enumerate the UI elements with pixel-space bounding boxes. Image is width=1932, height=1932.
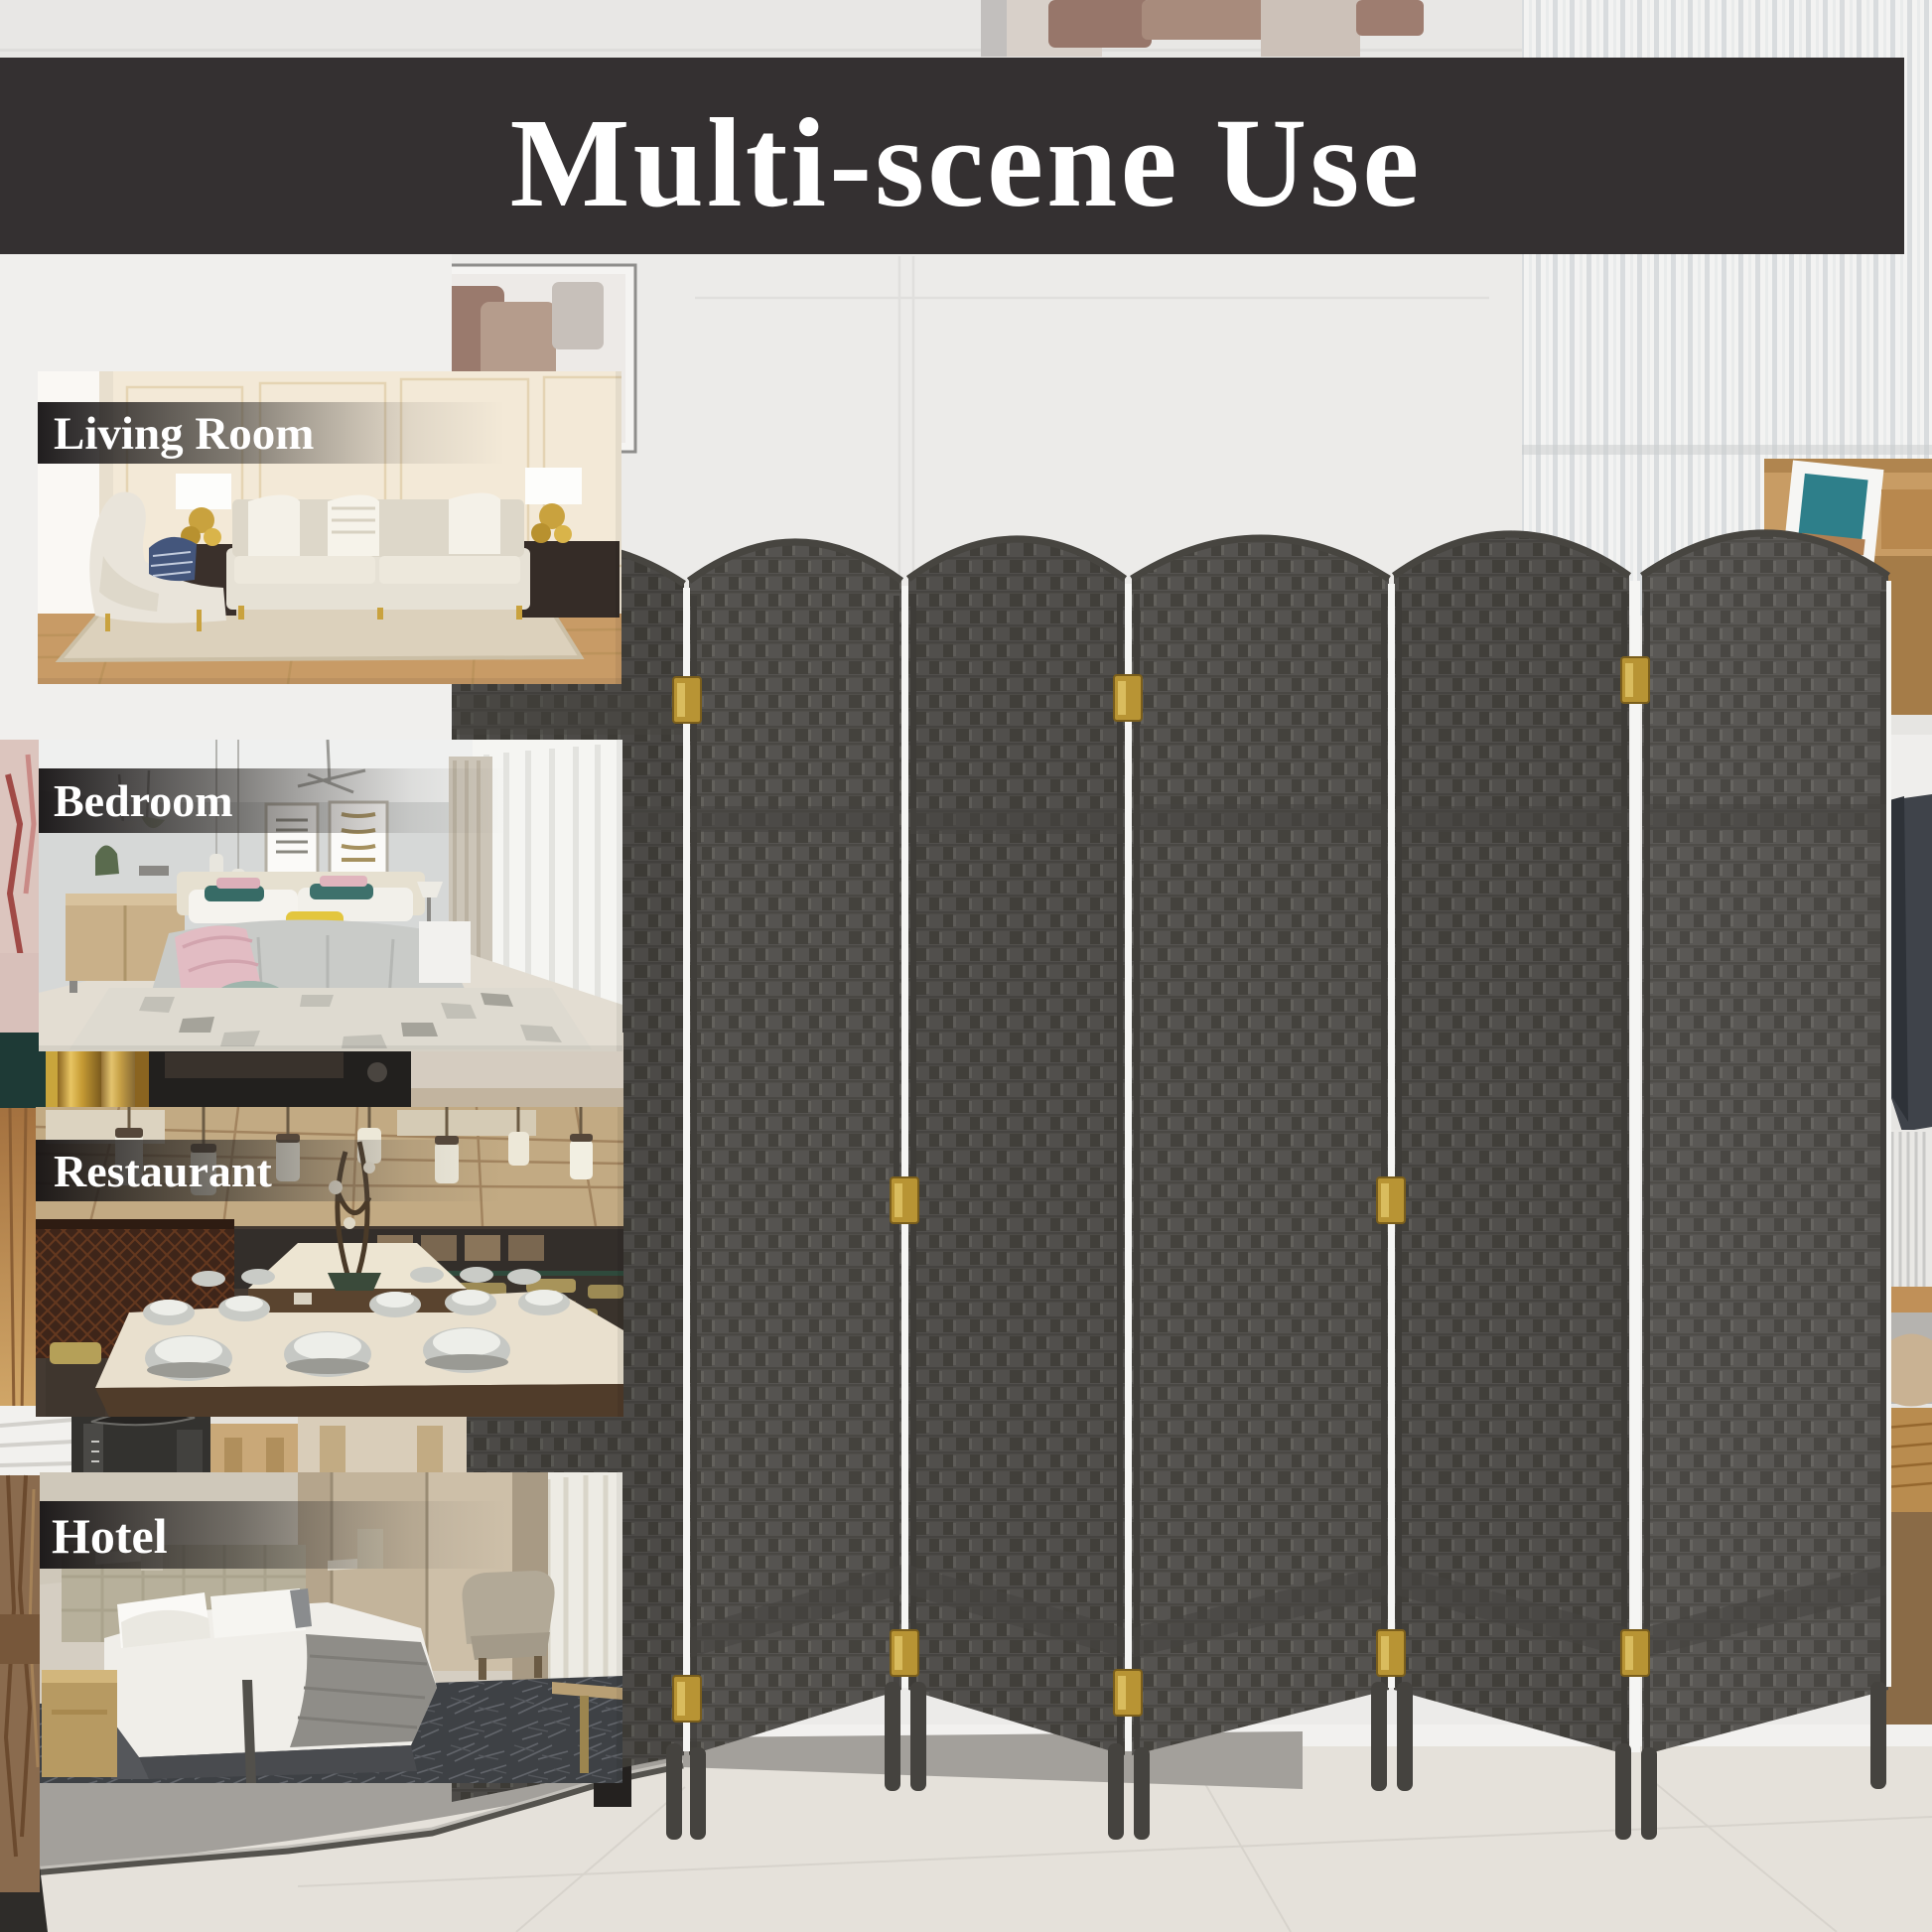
svg-text:Bedroom: Bedroom [54, 775, 233, 826]
svg-text:Living Room: Living Room [54, 408, 314, 460]
svg-text:Multi-scene Use: Multi-scene Use [510, 92, 1423, 233]
svg-text:Restaurant: Restaurant [54, 1146, 272, 1196]
svg-text:Hotel: Hotel [52, 1508, 168, 1564]
